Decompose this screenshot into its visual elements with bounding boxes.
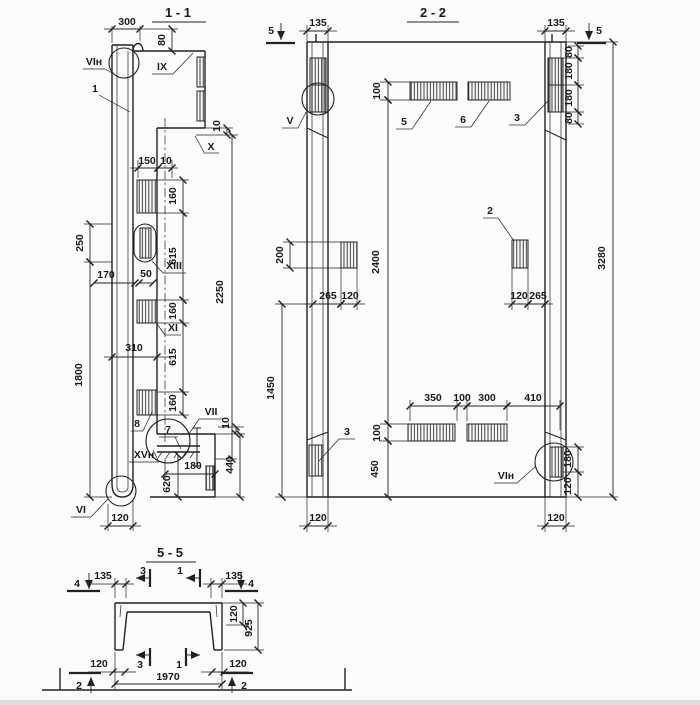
embedded-plate [467,424,507,441]
section-2-2-title: 2 - 2 [420,5,446,20]
dim-300: 300 [478,392,496,404]
dim-150: 150 [138,155,156,167]
callout-3-top: 3 [514,112,520,124]
cut-marker-1-bottom: 1 [176,659,182,671]
dim-135-right: 135 [547,17,565,29]
cut-marker-3-top: 3 [140,565,146,577]
dim-180-bottom: 180 [562,450,574,468]
section-5-5-title: 5 - 5 [157,545,183,560]
dim-120-mid-right: 120 [510,290,528,302]
dim-160-b: 160 [167,302,179,320]
dim-180-b: 180 [563,89,575,107]
dim-265-right: 265 [529,290,547,302]
embedded-plate [408,424,455,441]
cut-marker-4-left: 4 [74,578,80,590]
dim-615-a: 615 [167,247,179,265]
embedded-plate [137,180,157,213]
dim-80-a: 80 [563,46,575,58]
embedded-plate [137,300,157,323]
callout-6: 6 [460,114,466,126]
node-label-vi-bottom: VI [76,504,86,516]
lifting-loop [133,44,143,52]
node-label-xvn: XVн [134,449,154,461]
callout-2: 2 [487,205,493,217]
dim-135-right: 135 [225,570,243,582]
dim-120-thickness: 120 [228,605,240,623]
embedded-plate-6 [468,82,510,100]
dim-180: 180 [184,460,202,472]
embedded-plate [548,85,563,112]
dim-300: 300 [118,16,136,28]
dim-80: 80 [156,34,168,46]
embedded-plate [197,57,205,87]
section-2-2: 2 - 2 [265,5,618,532]
dim-50: 50 [140,268,152,280]
cut-marker-5-right: 5 [596,25,602,37]
dim-135-left: 135 [309,17,327,29]
embedded-plate-3 [309,445,323,476]
section-1-1-title: 1 - 1 [165,5,191,20]
dim-1970: 1970 [156,671,180,683]
dim-2250: 2250 [214,280,226,304]
node-label-vi-top: VIн [86,56,102,68]
dim-160-c: 160 [167,394,179,412]
cut-marker-5-left: 5 [268,25,274,37]
dim-2400: 2400 [370,250,382,274]
callout-3-bottom: 3 [344,426,350,438]
dim-120: 120 [111,512,129,524]
dim-1800: 1800 [73,363,85,387]
dim-120-under-left: 120 [309,512,327,524]
callout-8: 8 [134,418,140,430]
node-label-v: V [286,115,293,127]
node-label-vii: VII [205,406,218,418]
dim-120-bottom-right-chain: 120 [562,477,574,495]
cut-marker-1-top: 1 [177,565,183,577]
dim-10-top: 10 [211,120,223,132]
callout-7: 7 [165,424,171,436]
dim-135-left: 135 [94,570,112,582]
sheet-frame [42,668,352,690]
dim-100-bottom: 100 [371,424,383,442]
dim-120-foot-right: 120 [229,658,247,670]
dim-100-row: 100 [453,392,471,404]
dim-3280: 3280 [596,246,608,270]
embedded-plate [310,58,326,85]
channel-cross-section [115,603,222,650]
callout-5: 5 [401,116,407,128]
dim-10-bottom: 10 [220,417,232,429]
dim-120-mid-left: 120 [341,290,359,302]
dim-120-under-right: 120 [547,512,565,524]
slot-plate [140,228,151,258]
dim-350: 350 [424,392,442,404]
cut-marker-4-right: 4 [248,578,254,590]
callout-1: 1 [92,83,98,95]
embedded-plate-5 [410,82,457,100]
node-label-vn: VIн [498,470,514,482]
section-1-1: 1 - 1 [71,5,245,531]
embedded-plate [548,58,563,85]
dim-80-b: 80 [563,112,575,124]
dim-160-a: 160 [167,187,179,205]
blueprint-sheet: 1 - 1 [0,0,700,700]
dim-180-a: 180 [563,62,575,80]
dim-265-left: 265 [319,290,337,302]
drawing-canvas: 1 - 1 [0,0,700,700]
embedded-plate-2 [512,240,528,268]
node-label-xi: XI [168,322,178,334]
embedded-plates-2-2 [302,58,573,481]
dim-10-mid: 10 [160,155,172,167]
node-label-ix: IX [157,61,167,73]
embedded-plate [341,242,357,268]
dim-620: 620 [161,475,173,493]
dim-310: 310 [125,342,143,354]
embedded-plate [197,91,205,121]
dim-250: 250 [74,234,86,252]
dim-170: 170 [97,269,115,281]
dim-100-top: 100 [371,82,383,100]
dim-200: 200 [274,246,286,264]
dim-120-foot-left: 120 [90,658,108,670]
node-label-x: X [207,141,214,153]
dim-450: 450 [369,460,381,478]
embedded-plate [206,466,214,490]
embedded-plate [137,390,157,415]
dimensions-1-1: 300 80 10 150 10 160 615 160 615 160 [73,16,245,531]
dim-925: 925 [243,619,255,637]
dim-440: 440 [224,456,236,474]
cut-marker-3-bottom: 3 [137,659,143,671]
embedded-plate [310,85,326,112]
dim-410: 410 [524,392,542,404]
node-circle-vi-top [109,48,139,78]
section-5-5: 5 - 5 4 4 3 1 [67,545,264,693]
dim-1450: 1450 [265,376,277,400]
